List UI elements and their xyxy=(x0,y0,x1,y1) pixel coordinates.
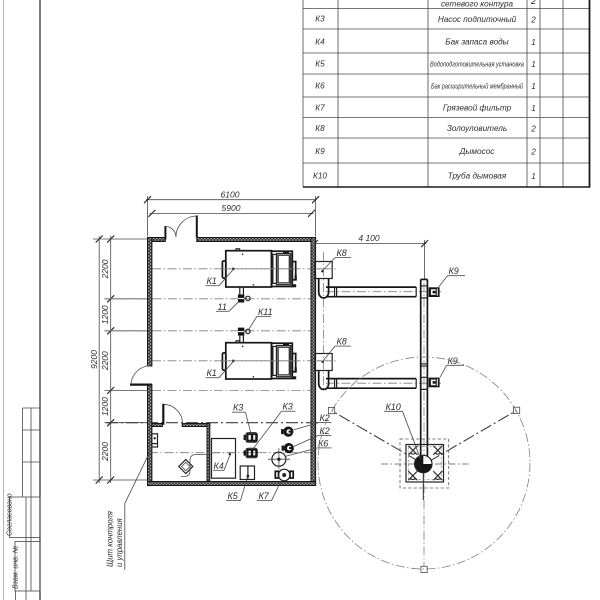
svg-text:4 100: 4 100 xyxy=(358,233,380,243)
svg-text:К4: К4 xyxy=(214,461,224,471)
svg-text:Насос подпиточный: Насос подпиточный xyxy=(438,15,517,24)
svg-text:К9: К9 xyxy=(449,266,459,276)
svg-text:Щит контроля: Щит контроля xyxy=(106,510,115,567)
svg-text:1200: 1200 xyxy=(100,305,110,324)
svg-text:1: 1 xyxy=(531,60,536,69)
svg-text:5900: 5900 xyxy=(222,203,241,213)
svg-text:Бак расширительный мембранный: Бак расширительный мембранный xyxy=(431,83,523,91)
svg-text:9200: 9200 xyxy=(89,350,99,369)
svg-text:Согласовано: Согласовано xyxy=(7,493,14,536)
svg-text:1200: 1200 xyxy=(100,397,110,416)
svg-text:К7: К7 xyxy=(315,104,325,113)
svg-text:К8: К8 xyxy=(315,124,325,133)
svg-text:К1: К1 xyxy=(207,368,217,378)
svg-text:1: 1 xyxy=(531,82,536,91)
svg-text:1: 1 xyxy=(531,172,536,181)
svg-text:Труба дымовая: Труба дымовая xyxy=(448,172,507,181)
svg-text:2: 2 xyxy=(530,0,536,6)
svg-text:К3: К3 xyxy=(283,402,293,412)
svg-text:Бак запаса воды: Бак запаса воды xyxy=(445,38,508,47)
svg-text:К11: К11 xyxy=(258,307,273,317)
svg-text:1: 1 xyxy=(531,38,536,47)
svg-text:К10: К10 xyxy=(313,172,327,181)
svg-text:Водоподготовительная установка: Водоподготовительная установка xyxy=(430,61,524,69)
svg-text:1: 1 xyxy=(531,104,536,113)
svg-text:Взам. инв. №: Взам. инв. № xyxy=(13,545,20,589)
svg-text:К6: К6 xyxy=(315,82,325,91)
svg-text:сетевого контура: сетевого контура xyxy=(441,0,514,9)
svg-text:Дымосос: Дымосос xyxy=(459,147,495,156)
svg-text:К9: К9 xyxy=(315,147,325,156)
svg-text:2200: 2200 xyxy=(100,442,110,462)
svg-text:2: 2 xyxy=(530,148,536,157)
svg-text:К3: К3 xyxy=(315,15,325,24)
svg-text:К10: К10 xyxy=(386,402,401,412)
svg-text:К8: К8 xyxy=(337,248,347,258)
svg-text:2200: 2200 xyxy=(100,351,110,371)
svg-text:2: 2 xyxy=(530,125,536,134)
svg-text:К1: К1 xyxy=(207,276,217,286)
svg-text:К8: К8 xyxy=(337,337,347,347)
svg-text:К5: К5 xyxy=(228,491,239,501)
svg-text:К5: К5 xyxy=(315,60,325,69)
svg-text:6100: 6100 xyxy=(221,189,240,199)
svg-text:и управления: и управления xyxy=(115,517,124,567)
svg-text:2: 2 xyxy=(530,16,536,25)
svg-text:К7: К7 xyxy=(259,491,270,501)
svg-text:11: 11 xyxy=(218,302,227,312)
svg-text:Грязевой фильтр: Грязевой фильтр xyxy=(443,104,512,113)
svg-text:К4: К4 xyxy=(315,38,325,47)
svg-text:Золоуловитель: Золоуловитель xyxy=(447,124,507,133)
svg-text:К3: К3 xyxy=(233,403,243,413)
svg-text:К2: К2 xyxy=(320,426,330,436)
svg-text:2200: 2200 xyxy=(100,259,110,279)
